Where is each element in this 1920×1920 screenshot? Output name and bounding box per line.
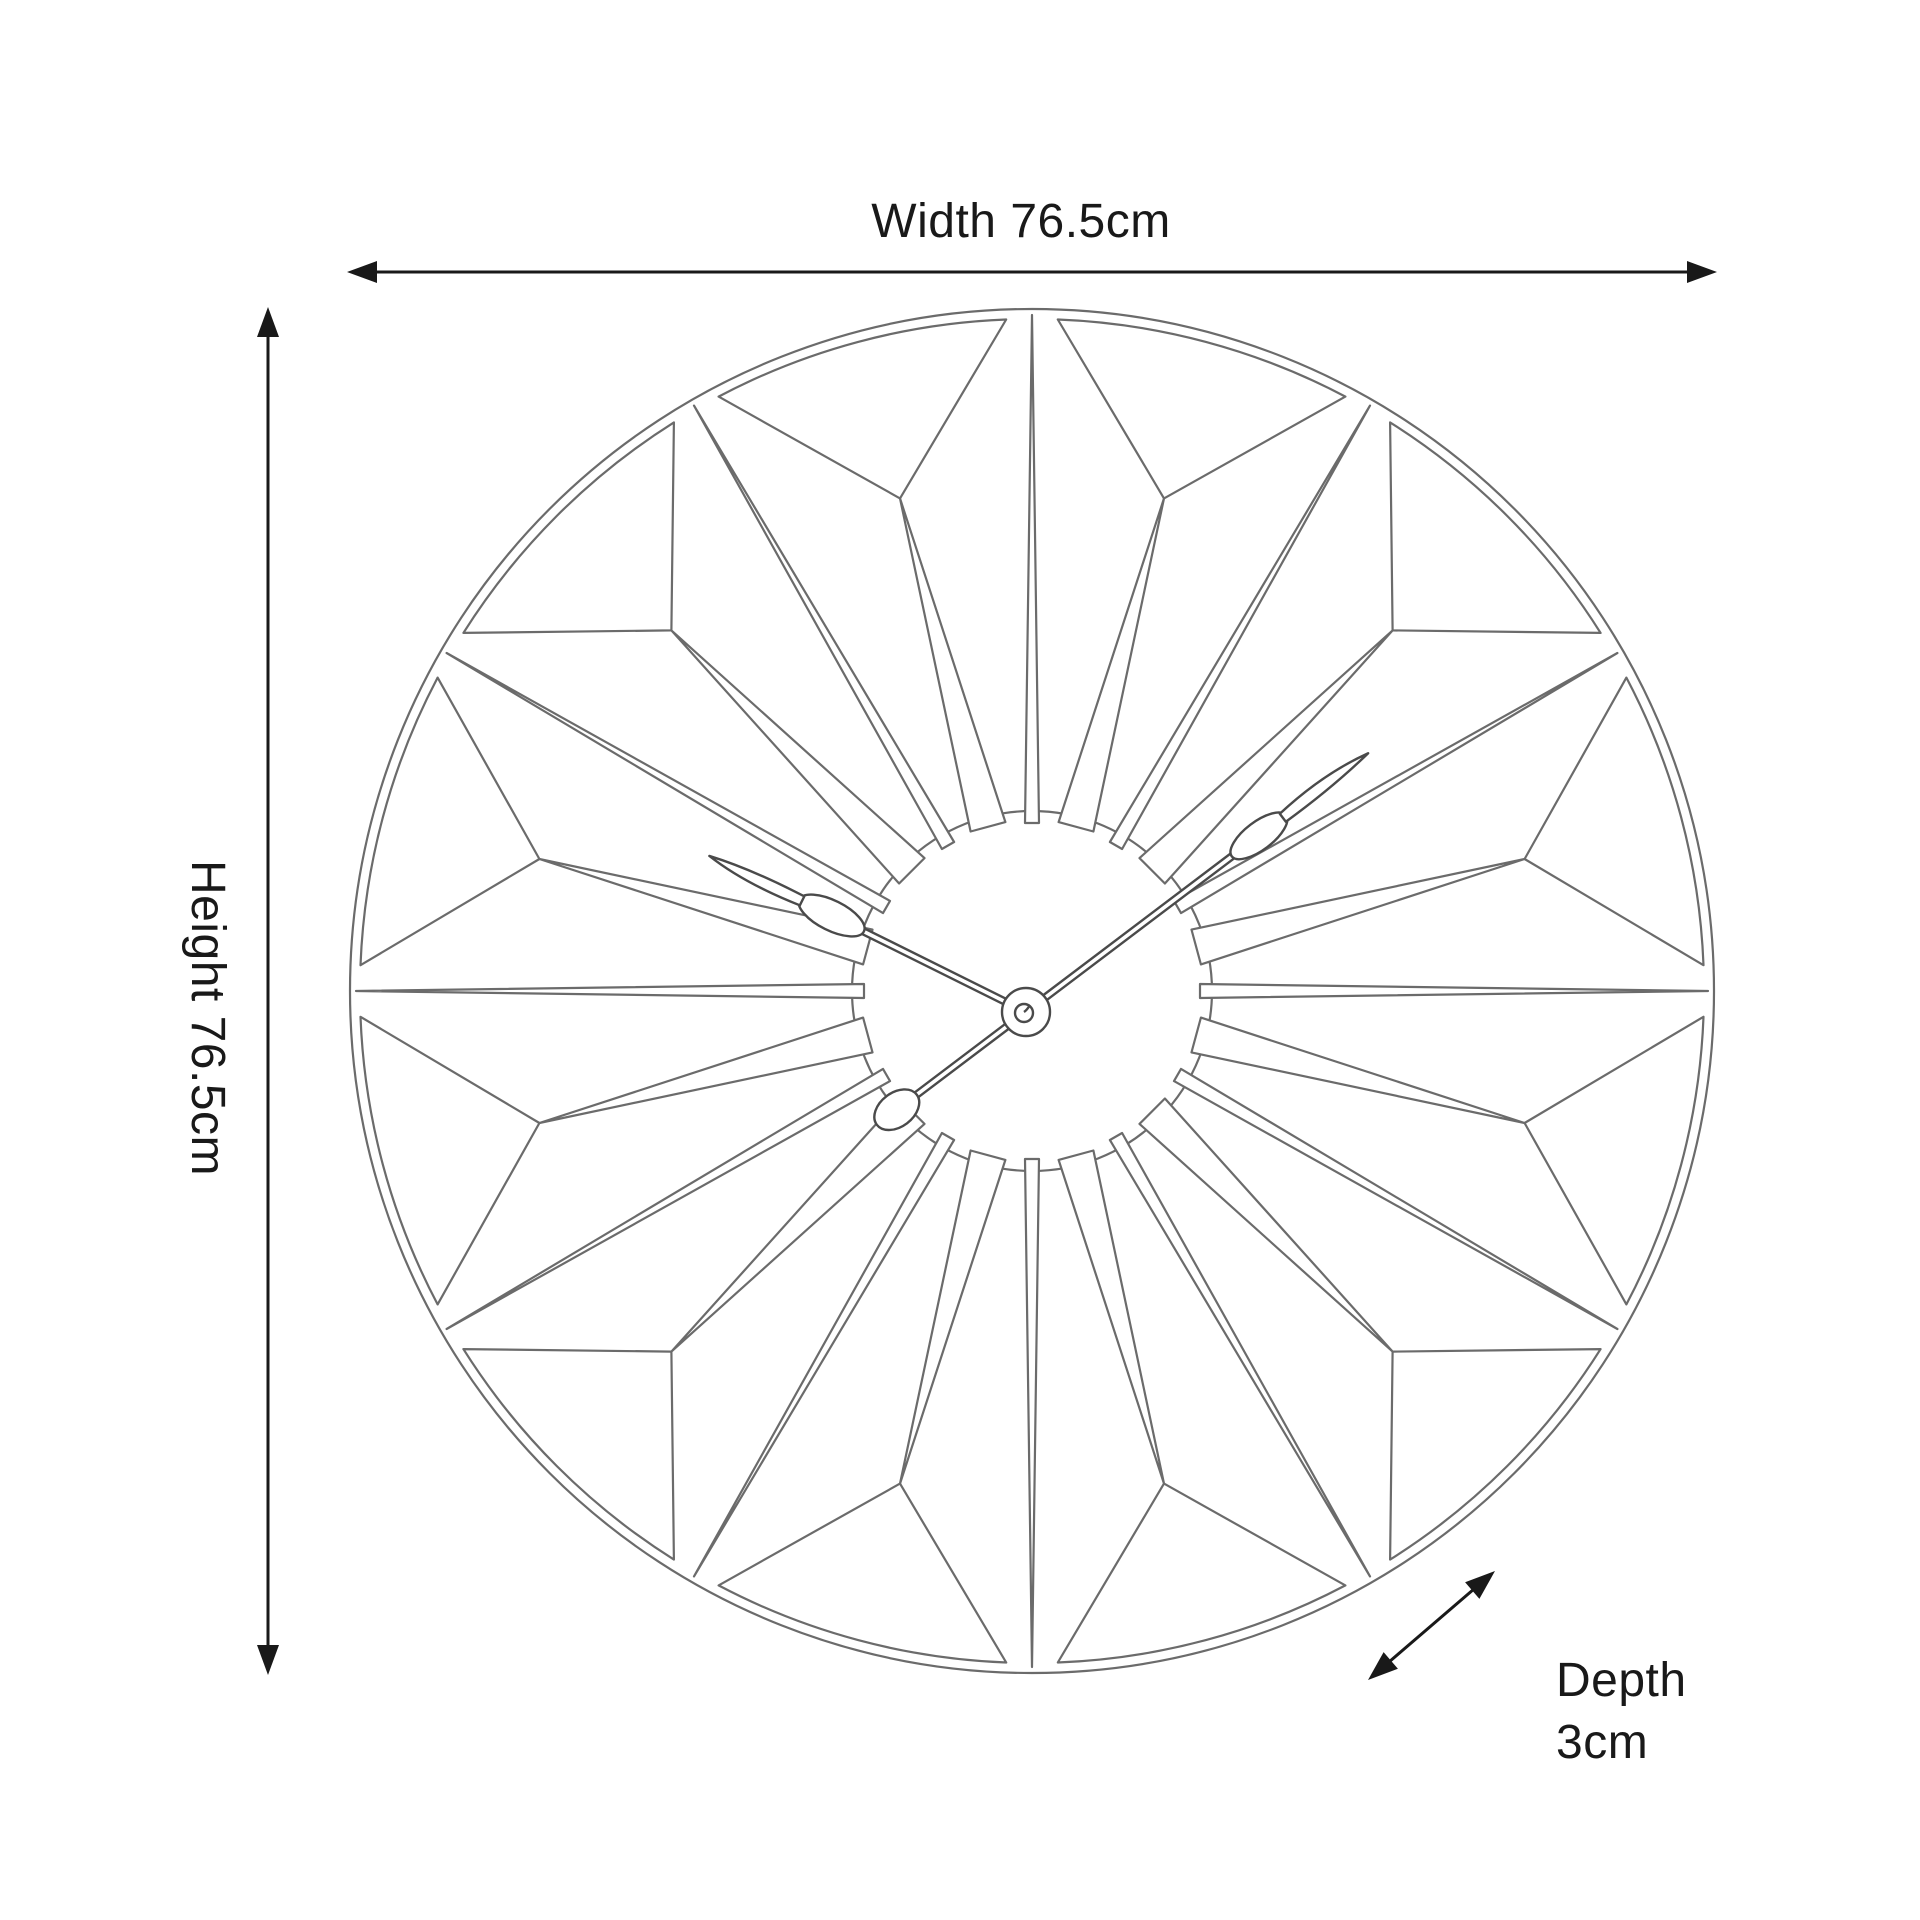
depth-label-word: Depth [1556,1650,1687,1712]
dimension-diagram-page: { "diagram": { "subject": "geometric-sun… [0,0,1920,1920]
height-dimension-arrow [257,307,279,1675]
depth-dimension-label: Depth 3cm [1556,1650,1687,1774]
depth-dimension-arrow [1368,1571,1495,1680]
width-dimension-arrow [347,261,1717,283]
height-dimension-label: Height 76.5cm [181,860,233,1176]
depth-label-value: 3cm [1556,1712,1687,1774]
diagram-canvas [0,0,1920,1920]
width-dimension-label: Width 76.5cm [871,196,1170,248]
